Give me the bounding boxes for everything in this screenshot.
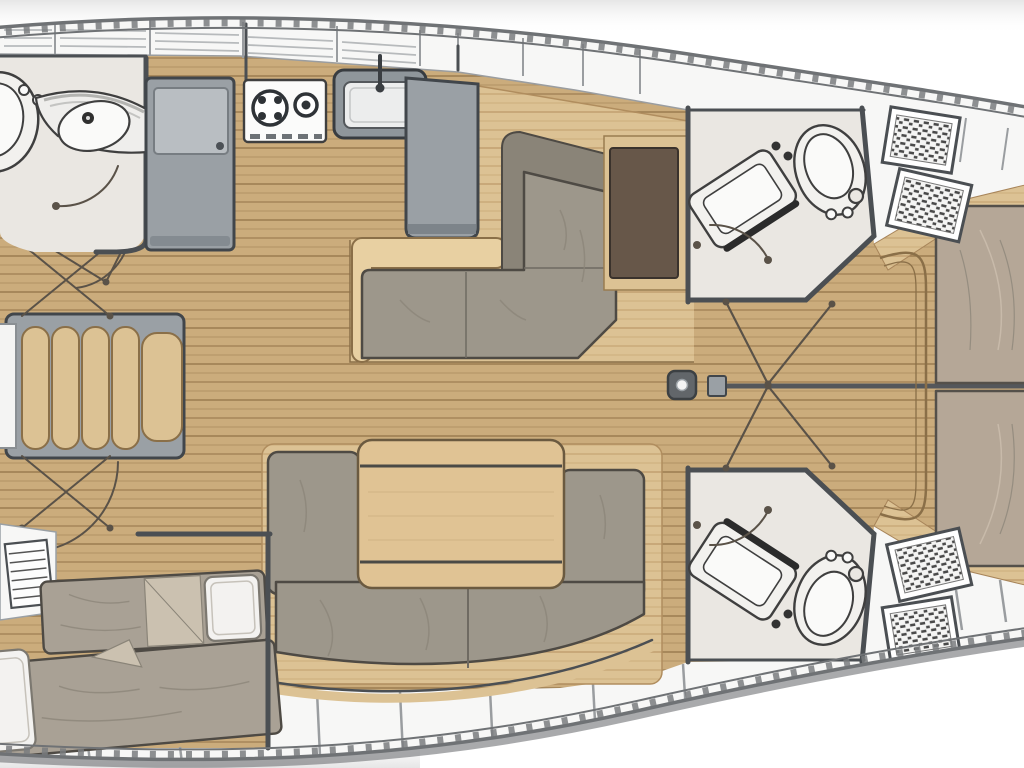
- mast-post: [668, 371, 696, 399]
- settee-ribbed-cushions: [22, 327, 182, 449]
- island-counter: [406, 78, 478, 245]
- companionway-steps-1: [882, 107, 960, 173]
- berth-upper: [40, 570, 267, 654]
- port-head: [0, 56, 148, 252]
- salon: [262, 440, 662, 698]
- faucet-dot: [772, 142, 781, 151]
- center-door-post: [708, 376, 726, 396]
- flush-button: [849, 189, 863, 203]
- yacht-floor-plan: [0, 0, 1024, 768]
- refrigerator-base-shadow: [150, 236, 230, 246]
- sofa-back-right: [560, 470, 644, 600]
- lounge-settee: [0, 314, 184, 458]
- floor-plan-svg: [0, 0, 1024, 768]
- refrigerator-handle: [216, 142, 224, 150]
- faucet-dot: [784, 152, 793, 161]
- salon-table: [358, 440, 564, 588]
- door-hinge-dot: [52, 202, 60, 210]
- sofa-back-left: [268, 452, 360, 594]
- settee-side-shelf: [0, 324, 16, 448]
- burner-large: [253, 91, 287, 125]
- two-burner-stove: [244, 80, 326, 142]
- chart-table-top: [610, 148, 678, 278]
